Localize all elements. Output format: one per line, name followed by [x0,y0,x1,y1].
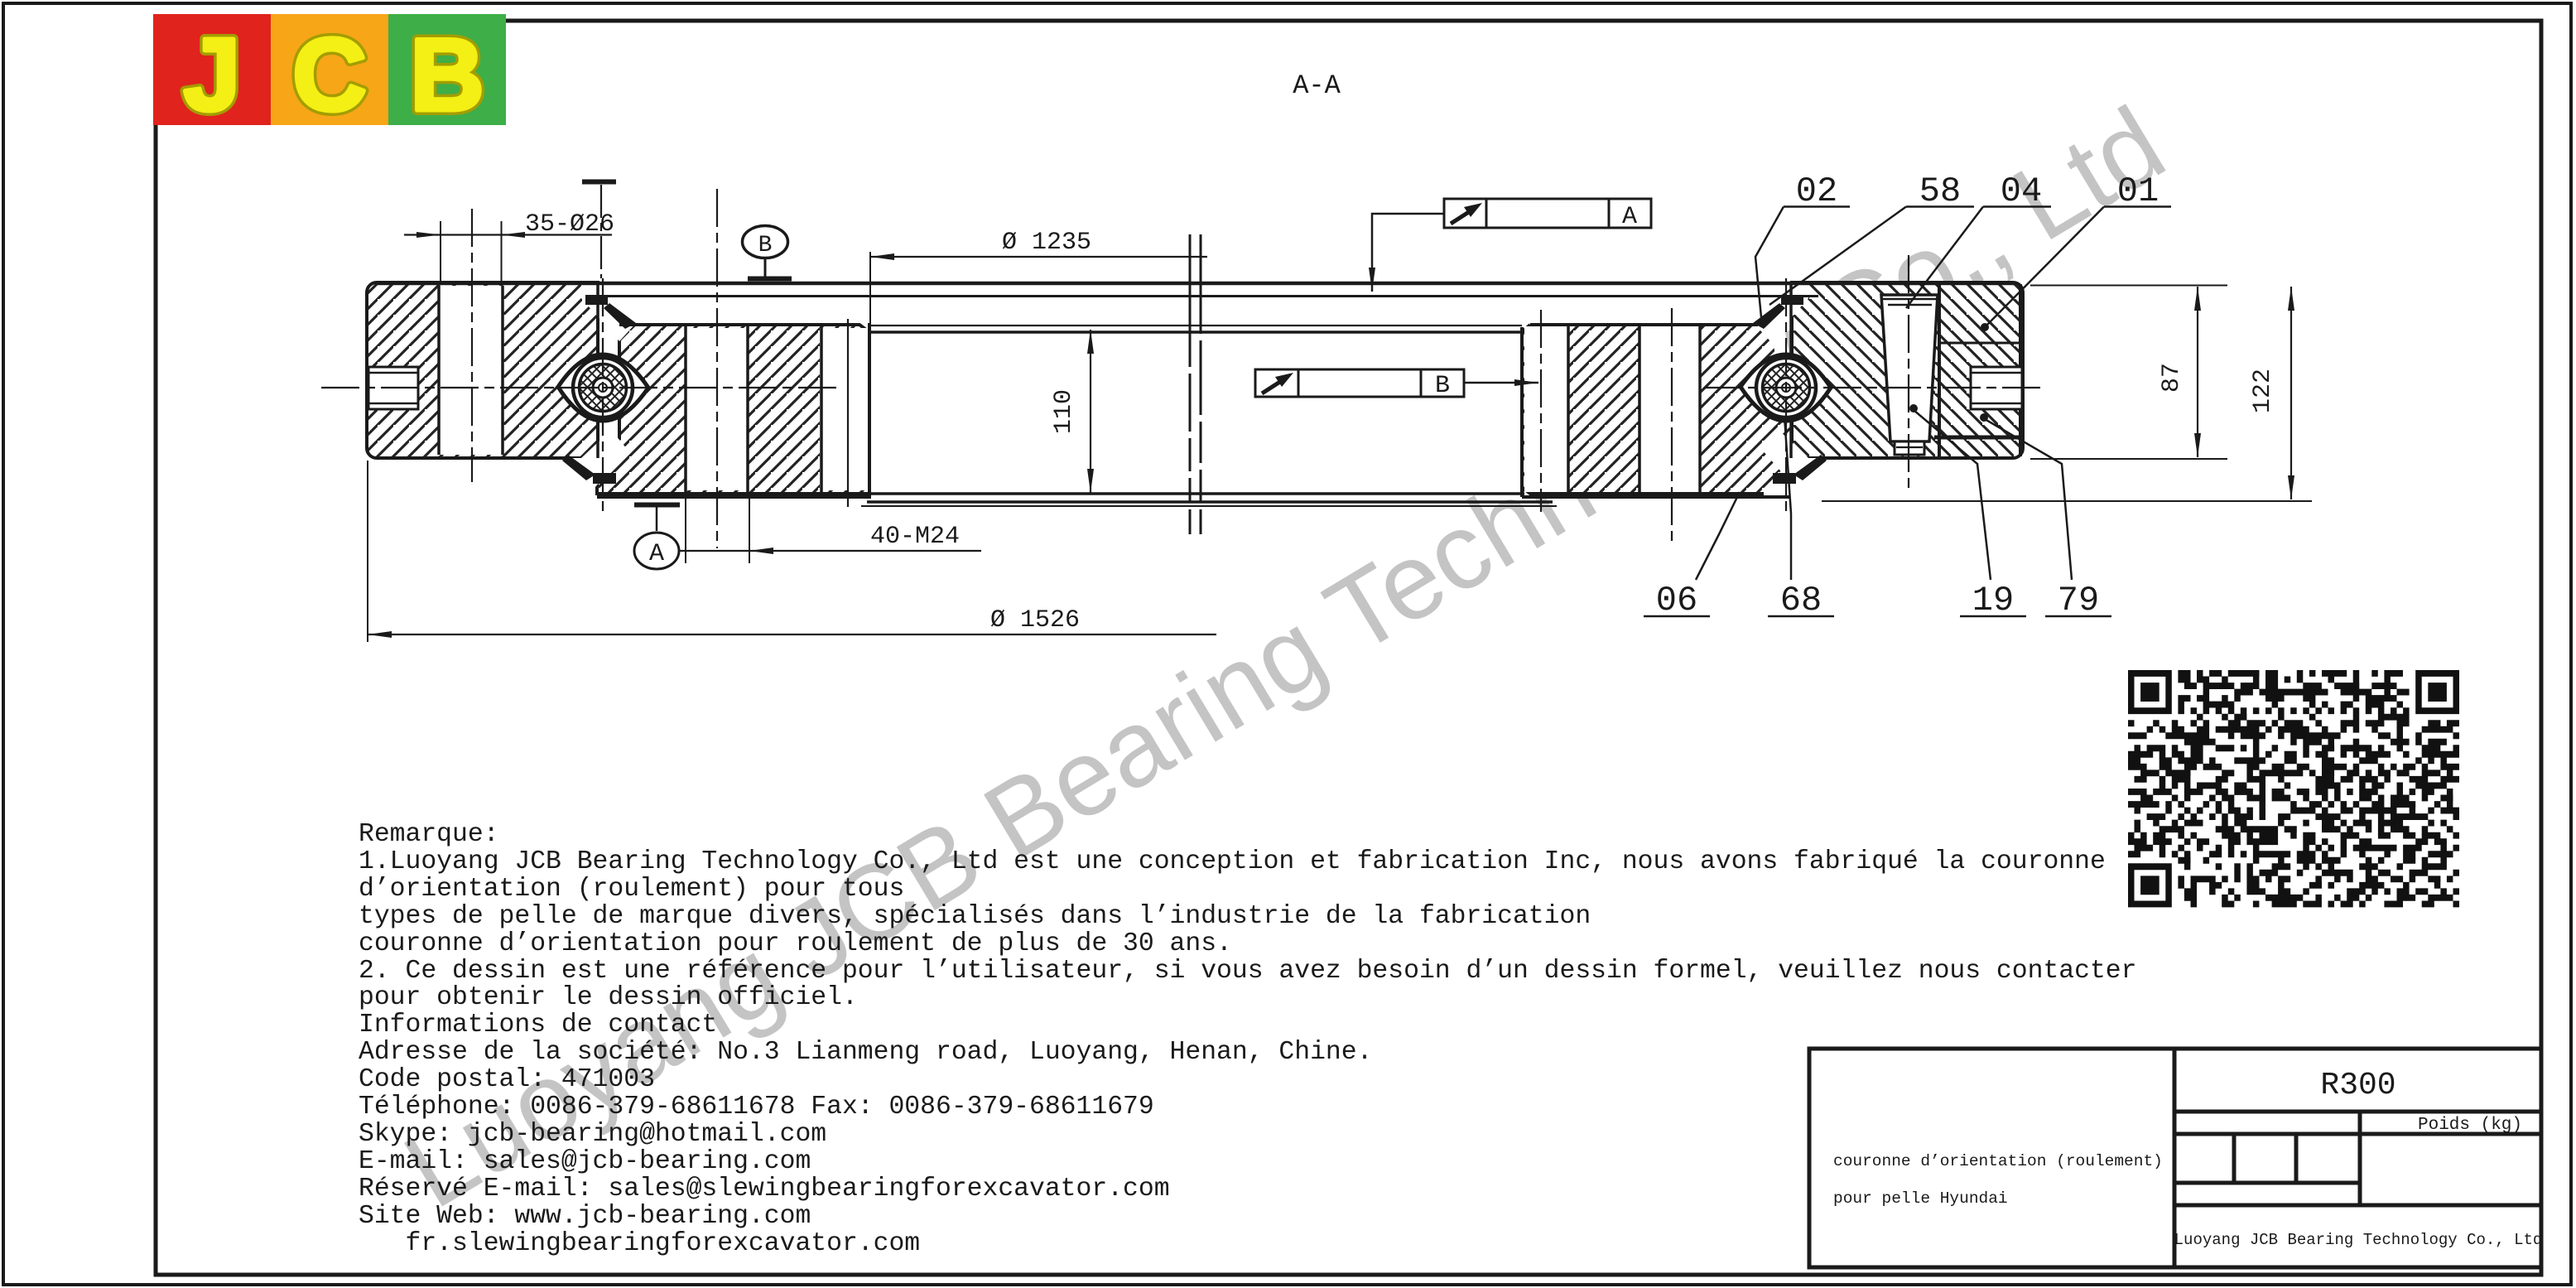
svg-text:C: C [292,18,367,133]
svg-text:2. Ce dessin est une référence: 2. Ce dessin est une référence pour l’ut… [359,957,2136,986]
svg-text:Remarque:: Remarque: [359,820,499,849]
svg-text:A-A: A-A [1293,70,1341,101]
svg-text:pour pelle Hyundai: pour pelle Hyundai [1833,1189,2008,1208]
svg-text:04: 04 [2001,171,2042,211]
svg-text:19: 19 [1972,581,2014,620]
svg-text:01: 01 [2117,171,2159,211]
svg-text:A: A [649,540,664,568]
svg-text:couronne d’orientation pour ro: couronne d’orientation pour roulement de… [359,929,1232,958]
svg-text:06: 06 [1656,581,1697,620]
svg-text:Ø 1526: Ø 1526 [990,606,1080,634]
svg-text:R300: R300 [2320,1068,2395,1103]
svg-text:B: B [1435,372,1450,400]
svg-text:B: B [758,233,773,258]
svg-text:d’orientation (roulement) pour: d’orientation (roulement) pour tous [359,875,904,904]
svg-text:87: 87 [2158,363,2186,393]
svg-text:40-M24: 40-M24 [870,523,960,551]
svg-text:Site Web: www.jcb-bearing.com: Site Web: www.jcb-bearing.com [359,1202,811,1231]
svg-text:122: 122 [2249,369,2277,413]
svg-text:1.Luoyang JCB Bearing Technolo: 1.Luoyang JCB Bearing Technology Co., Lt… [359,847,2106,876]
svg-text:02: 02 [1796,171,1837,211]
svg-text:110: 110 [1050,389,1078,434]
svg-text:E-mail: sales@jcb-bearing.com: E-mail: sales@jcb-bearing.com [359,1147,811,1176]
svg-text:fr.slewingbearingforexcavator.: fr.slewingbearingforexcavator.com [359,1229,920,1258]
svg-text:Adresse de la société: No.3 Li: Adresse de la société: No.3 Lianmeng roa… [359,1038,1372,1067]
svg-text:58: 58 [1919,171,1961,211]
svg-text:types de pelle de marque diver: types de pelle de marque divers, spécial… [359,902,1591,931]
svg-text:Téléphone: 0086-379-68611678 F: Téléphone: 0086-379-68611678 Fax: 0086-3… [359,1093,1154,1122]
svg-text:couronne d’orientation (roulem: couronne d’orientation (roulement) [1833,1152,2163,1170]
svg-text:68: 68 [1780,581,1822,620]
svg-text:Informations de contact: Informations de contact [359,1011,717,1040]
svg-text:Code postal: 471003: Code postal: 471003 [359,1065,655,1094]
svg-text:Luoyang JCB Bearing Technology: Luoyang JCB Bearing Technology Co., Ltd [2174,1231,2543,1249]
svg-text:Réservé E-mail: sales@slewingb: Réservé E-mail: sales@slewingbearingfore… [359,1175,1170,1204]
svg-text:pour obtenir le dessin officie: pour obtenir le dessin officiel. [359,983,858,1012]
svg-text:J: J [184,18,241,133]
svg-text:B: B [410,18,484,133]
svg-text:79: 79 [2058,581,2099,620]
svg-text:Skype: jcb-bearing@hotmail.com: Skype: jcb-bearing@hotmail.com [359,1120,826,1149]
svg-text:A: A [1622,203,1637,231]
svg-text:Ø 1235: Ø 1235 [1002,229,1091,257]
svg-text:Poids (kg): Poids (kg) [2418,1116,2522,1135]
